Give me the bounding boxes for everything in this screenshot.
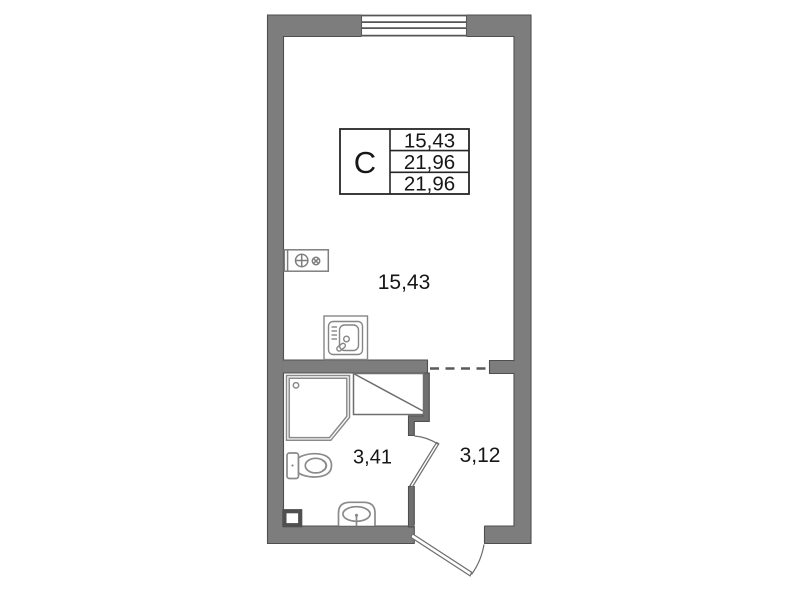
svg-text:3,12: 3,12 [460, 444, 501, 467]
svg-text:15,43: 15,43 [378, 271, 431, 294]
svg-text:3,41: 3,41 [353, 447, 392, 469]
svg-text:21,96: 21,96 [404, 173, 455, 196]
svg-text:15,43: 15,43 [404, 130, 455, 153]
svg-text:21,96: 21,96 [404, 151, 455, 174]
svg-text:C: C [354, 145, 376, 180]
